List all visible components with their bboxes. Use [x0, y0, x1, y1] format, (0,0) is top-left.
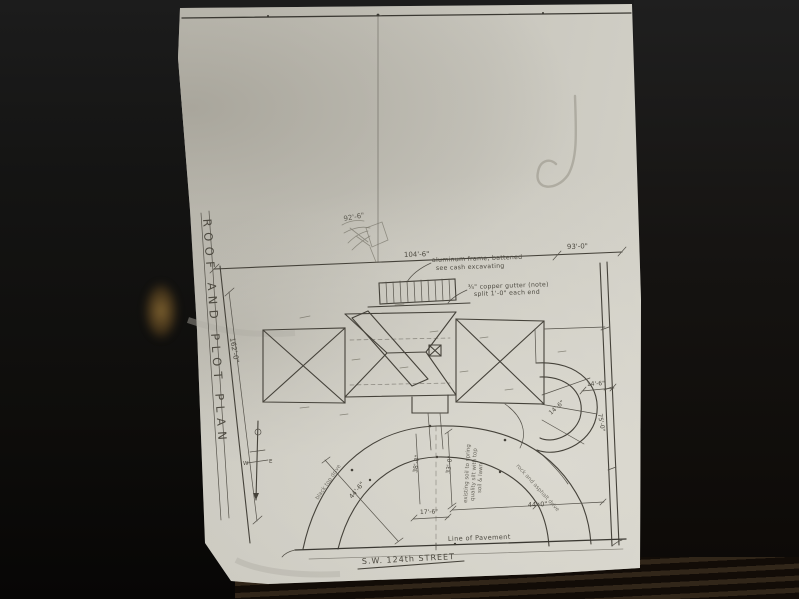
frame-note-line1: aluminum frame, battened — [432, 254, 523, 264]
left-roof-wing — [263, 328, 345, 403]
dim-walk-depth: 38'-0" — [412, 454, 421, 473]
frame-note-line2: see cash excavating — [436, 263, 505, 272]
note-soil-3: soil & lawn — [477, 462, 485, 493]
dim-drive-depth: 33'-0" — [445, 455, 454, 474]
right-boundary: 75'-0" — [596, 262, 619, 546]
paper-fold — [188, 320, 295, 334]
compass-e: E — [269, 459, 273, 465]
dim-right-depth: 75'-0" — [596, 413, 606, 432]
pavement-label: Line of Pavement — [448, 533, 511, 543]
note-drive-left: black top drive — [315, 463, 343, 501]
compass-w: W — [243, 461, 249, 467]
photo-of-blueprint: ROOF AND PLOT PLAN 162'-0" 104'-6" 93'-0… — [0, 0, 799, 599]
dim-lot-width: 104'-6" — [404, 250, 430, 259]
pencil-sketch: 92'-6" — [342, 211, 388, 262]
dim-lot-width-right: 93'-0" — [567, 242, 588, 251]
dim-drive-span-left: 17'-6" — [420, 508, 438, 516]
dim-turnaround: 14'-6" — [587, 380, 606, 388]
dim-drive-radius: 44'-6" — [347, 480, 366, 500]
pergola-hatch — [368, 279, 470, 307]
pencil-calc: 92'-6" — [343, 211, 365, 223]
sheet-title-block: ROOF AND PLOT PLAN — [200, 211, 230, 520]
paper-fold-bottom — [236, 560, 340, 574]
roof-plan — [263, 304, 605, 450]
driveway-arcs: 44'-6" 38'-0" 33'-0" 17'-6" 44'-0" black… — [303, 425, 606, 549]
street-name: S.W. 124th STREET — [358, 552, 464, 569]
street-label: S.W. 124th STREET — [362, 552, 456, 566]
turnaround-loop: 14'-6" 14'-6" — [505, 329, 616, 484]
valley-band — [352, 311, 428, 386]
dim-drive-span-right: 44'-0" — [528, 500, 548, 509]
property-line — [182, 12, 631, 262]
gutter-note: ¾" copper gutter (note) split 1'-0" each… — [448, 281, 549, 303]
chimney — [429, 345, 441, 356]
compass-north-arrow: W E — [243, 421, 273, 500]
j-sketch-mark — [538, 96, 576, 187]
porch — [412, 395, 448, 450]
gutter-note-line2: split 1'-0" each end — [474, 289, 540, 298]
top-dimension-line: 104'-6" 93'-0" — [210, 242, 626, 273]
blueprint-drawing: ROOF AND PLOT PLAN 162'-0" 104'-6" 93'-0… — [0, 0, 799, 599]
